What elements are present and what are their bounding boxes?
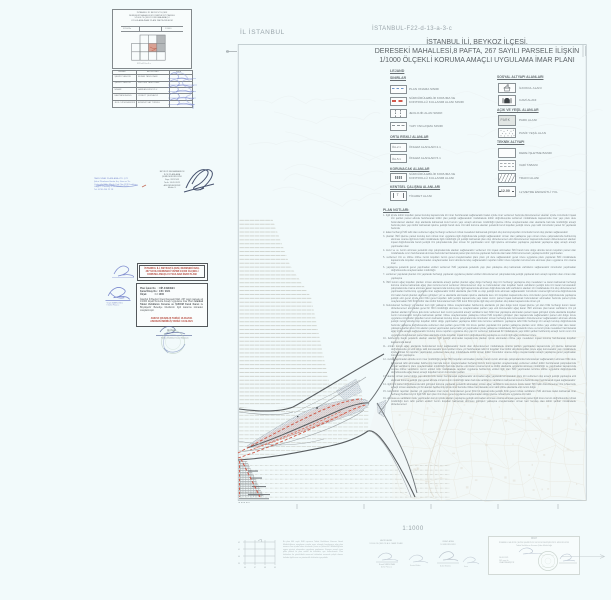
svg-text:69: 69 xyxy=(274,567,276,569)
svg-text:41: 41 xyxy=(238,549,240,551)
svg-text:Kontrol Eden: Kontrol Eden xyxy=(410,564,420,567)
svg-text:39: 39 xyxy=(238,563,240,565)
svg-text:Şehir Plancısı: Şehir Plancısı xyxy=(381,566,393,568)
svg-text:İmza: İmza xyxy=(464,565,468,568)
svg-text:66: 66 xyxy=(244,567,246,569)
svg-text:Şube Müdürü: Şube Müdürü xyxy=(440,566,451,568)
svg-text:42: 42 xyxy=(238,542,240,544)
svg-text:40: 40 xyxy=(238,556,240,558)
svg-text:68: 68 xyxy=(264,567,266,569)
svg-text:Y. Şehir Plancısı: Y. Şehir Plancısı xyxy=(106,305,119,307)
svg-text:67: 67 xyxy=(254,567,256,569)
